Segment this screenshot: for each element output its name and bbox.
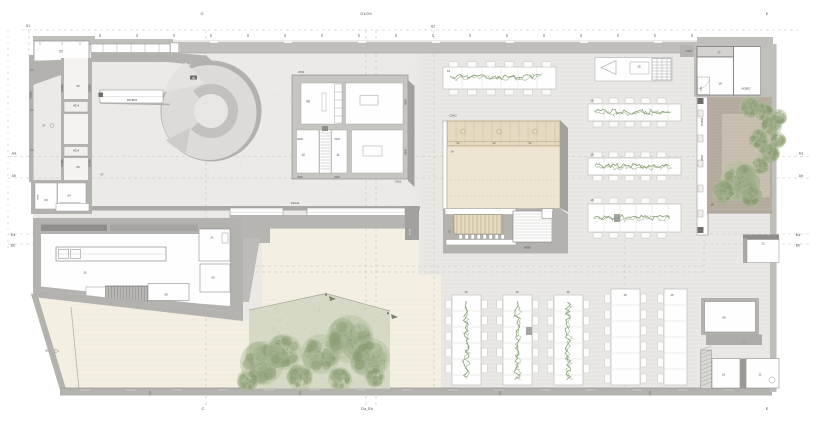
svg-text:18: 18 (718, 82, 722, 86)
svg-text:MOB03: MOB03 (701, 117, 704, 126)
svg-text:15: 15 (637, 65, 641, 69)
svg-text:16: 16 (590, 153, 594, 157)
svg-text:10: 10 (301, 153, 305, 157)
svg-text:V004: V004 (404, 149, 407, 155)
svg-text:V008: V008 (524, 246, 531, 250)
svg-text:D'a D'b: D'a D'b (361, 12, 372, 16)
svg-text:E: E (766, 12, 769, 16)
svg-text:26: 26 (83, 271, 87, 275)
svg-text:MOB01: MOB01 (127, 98, 138, 102)
svg-text:17: 17 (717, 51, 721, 55)
svg-text:VE14: VE14 (73, 149, 80, 153)
svg-text:05: 05 (76, 84, 80, 88)
svg-text:11: 11 (758, 373, 761, 377)
svg-text:CA02: CA02 (449, 114, 457, 118)
svg-text:16: 16 (590, 198, 594, 202)
svg-text:V005: V005 (701, 155, 704, 161)
svg-text:E: E (766, 407, 769, 411)
svg-text:B'b: B'b (11, 244, 16, 248)
svg-text:08: 08 (306, 100, 310, 104)
svg-text:VE13b: VE13b (410, 228, 412, 235)
svg-text:G: G (201, 12, 204, 16)
svg-text:57: 57 (42, 124, 46, 128)
svg-text:VE03A: VE03A (89, 159, 92, 167)
svg-text:V002: V002 (334, 176, 340, 179)
svg-text:17: 17 (448, 230, 452, 234)
svg-text:S2: S2 (431, 25, 435, 29)
svg-text:07: 07 (100, 173, 104, 177)
svg-text:04: 04 (67, 194, 71, 198)
svg-text:VE03A: VE03A (89, 84, 92, 92)
svg-text:CA01: CA01 (395, 180, 402, 184)
svg-text:VE05A: VE05A (61, 84, 64, 92)
svg-text:S1: S1 (26, 24, 30, 28)
svg-text:CA07: CA07 (686, 50, 693, 53)
svg-text:28: 28 (164, 293, 168, 297)
svg-text:16: 16 (515, 290, 519, 294)
svg-text:22: 22 (761, 242, 765, 246)
svg-text:16: 16 (590, 99, 594, 103)
svg-text:A'a: A'a (12, 152, 17, 156)
svg-text:V004: V004 (404, 99, 407, 105)
svg-text:A'b: A'b (799, 174, 804, 178)
svg-text:21: 21 (210, 236, 214, 240)
svg-text:VE14: VE14 (73, 104, 80, 108)
svg-text:MOB02: MOB02 (742, 87, 751, 91)
svg-text:A'a: A'a (799, 152, 804, 156)
svg-text:V003: V003 (334, 138, 340, 141)
svg-text:16: 16 (670, 293, 674, 297)
svg-text:MOB: MOB (38, 194, 40, 200)
svg-text:01: 01 (45, 349, 49, 353)
svg-text:VE05A: VE05A (61, 159, 64, 167)
svg-text:02: 02 (59, 50, 63, 54)
svg-text:B'a: B'a (796, 233, 801, 237)
svg-text:03: 03 (44, 198, 48, 202)
svg-text:10: 10 (722, 373, 726, 377)
svg-text:VE03: VE03 (297, 138, 304, 141)
svg-text:16: 16 (566, 290, 570, 294)
svg-text:03: 03 (211, 276, 215, 280)
svg-text:V04A: V04A (700, 86, 703, 92)
svg-text:D'a_D'b: D'a_D'b (361, 407, 373, 411)
svg-text:V002: V002 (297, 176, 303, 179)
svg-text:B'b: B'b (796, 244, 801, 248)
svg-text:16: 16 (464, 290, 468, 294)
svg-text:14: 14 (450, 150, 454, 154)
svg-text:16: 16 (447, 69, 451, 73)
svg-text:B'a: B'a (11, 233, 16, 237)
svg-text:C: C (202, 407, 205, 411)
svg-text:VE03A: VE03A (29, 91, 32, 99)
svg-text:16: 16 (623, 293, 627, 297)
svg-text:09: 09 (722, 316, 726, 320)
svg-text:V001: V001 (298, 70, 305, 74)
svg-text:VE13a: VE13a (291, 201, 300, 205)
svg-text:06: 06 (76, 165, 80, 169)
svg-text:11: 11 (336, 153, 340, 157)
svg-text:A'b: A'b (12, 174, 17, 178)
svg-text:18: 18 (710, 203, 714, 207)
